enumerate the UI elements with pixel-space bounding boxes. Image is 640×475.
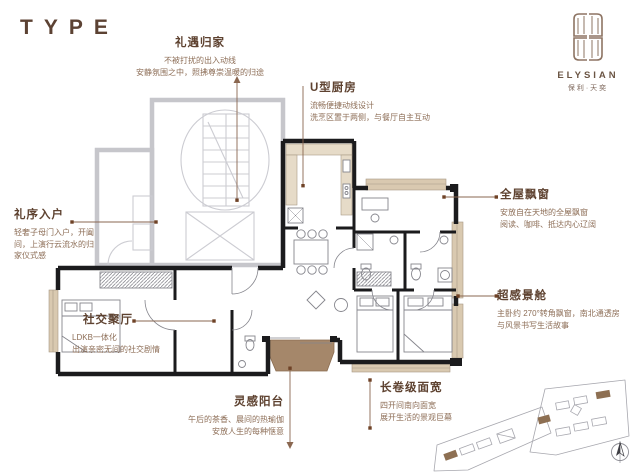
compass-icon <box>612 441 629 463</box>
annotation-line: 午后的茶香、晨间的热瑜伽 <box>128 414 284 426</box>
brand-logo: ELYSIAN 保利·天奕 <box>540 12 636 93</box>
annotation-title: 社交聚厅 <box>72 311 202 327</box>
balcony-area <box>268 340 334 371</box>
annotation-title: 礼序入户 <box>14 206 126 222</box>
annotation-line: 阅读、咖啡、抵达内心辽阔 <box>500 219 596 231</box>
annotation-social-hall: 社交聚厅 LDKB一体化 出演亲密无间的社交剧情 <box>72 311 202 355</box>
annotation-homecoming: 礼遇归家 不被打扰的出入动线 安静氛围之中，照拂尊崇温暖的归途 <box>105 34 295 78</box>
annotation-line: 家仪式感 <box>14 250 126 262</box>
brand-name: ELYSIAN <box>540 70 636 81</box>
annotation-line: 安静氛围之中，照拂尊崇温暖的归途 <box>105 67 295 79</box>
double-door-monogram-icon <box>571 12 605 62</box>
annotation-title: 长卷级面宽 <box>380 379 452 395</box>
annotation-line: 洗烹区置于两侧，与餐厅自主互动 <box>310 112 430 124</box>
annotation-line: 与风景书写生活故事 <box>497 320 635 332</box>
annotation-title: U型厨房 <box>310 79 430 95</box>
annotation-title: 灵感阳台 <box>128 393 284 409</box>
annotation-line: 不被打扰的出入动线 <box>105 55 295 67</box>
site-plan <box>434 380 629 471</box>
annotation-title: 礼遇归家 <box>105 34 295 50</box>
annotation-line: 轻奢子母门入户，开阖 <box>14 227 126 239</box>
annotation-bay-window: 全屋飘窗 安放自在天地的全屋飘窗 阅读、咖啡、抵达内心辽阔 <box>500 186 596 230</box>
brand-cn-name: 保利·天奕 <box>540 83 636 93</box>
brochure-page: TYPE ELYSIAN 保利·天奕 礼遇归家 不被打扰的出入动线 安静氛围之中… <box>0 0 640 475</box>
annotation-line: 安放人生的每种惬意 <box>128 426 284 438</box>
annotation-line: 四开间南向面宽 <box>380 400 452 412</box>
annotation-title: 全屋飘窗 <box>500 186 596 202</box>
annotation-view-cabin: 超感景舱 主卧约 270°转角飘窗，南北通透房 与风景书写生活故事 <box>497 287 635 331</box>
annotation-line: 展开生活的景观巨幕 <box>380 412 452 424</box>
annotation-line: 流畅便捷动线设计 <box>310 100 430 112</box>
annotation-kitchen: U型厨房 流畅便捷动线设计 洗烹区置于两侧，与餐厅自主互动 <box>310 79 430 123</box>
annotation-line: LDKB一体化 <box>72 332 202 344</box>
annotation-line: 间，上演行云流水的归 <box>14 239 126 251</box>
annotation-line: 出演亲密无间的社交剧情 <box>72 344 202 356</box>
annotation-line: 安放自在天地的全屋飘窗 <box>500 207 596 219</box>
annotation-entry: 礼序入户 轻奢子母门入户，开阖 间，上演行云流水的归 家仪式感 <box>14 206 126 262</box>
annotation-balcony: 灵感阳台 午后的茶香、晨间的热瑜伽 安放人生的每种惬意 <box>128 393 284 437</box>
annotation-title: 超感景舱 <box>497 287 635 303</box>
annotation-line: 主卧约 270°转角飘窗，南北通透房 <box>497 308 635 320</box>
annotation-frontage: 长卷级面宽 四开间南向面宽 展开生活的景观巨幕 <box>380 379 452 423</box>
